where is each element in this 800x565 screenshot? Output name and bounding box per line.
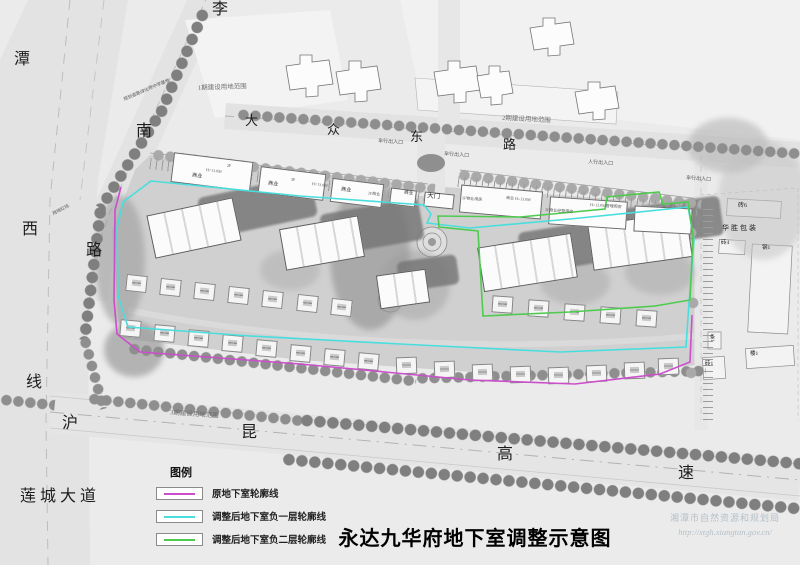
road-label-tan: 潭 — [14, 52, 30, 68]
industrial-label-lou1: 楼1 — [750, 352, 758, 358]
shop2-label: 商业 — [268, 181, 279, 187]
expressway-label-kun: 昆 — [241, 425, 257, 441]
shop3-label: 商业 — [341, 187, 352, 193]
road-label-nan: 南 — [136, 124, 152, 140]
legend-label-level-minus1: 调整后地下室负一层轮廓线 — [212, 509, 326, 523]
legend-label-level-minus2: 调整后地下室负二层轮廓线 — [212, 532, 326, 546]
legend-label-original: 原地下室轮廓线 — [212, 486, 279, 500]
legend-heading: 图例 — [170, 464, 326, 480]
shop1-floor: 2F — [227, 164, 231, 168]
industrial-label-zhuan4: 砖4 — [721, 241, 729, 247]
legend-swatch-level-minus2 — [156, 533, 203, 546]
road-label-xian: 线 — [26, 375, 42, 391]
road-label-da: 大 — [245, 114, 258, 127]
road-label-xi: 西 — [22, 222, 38, 238]
road-label-lu2: 路 — [503, 138, 516, 151]
expressway-label-gao: 高 — [497, 447, 513, 463]
shop5-label: 商业 — [404, 191, 413, 196]
legend-item-original: 原地下室轮廓线 — [156, 486, 326, 500]
road-label-li: 李 — [212, 2, 228, 18]
industrial-label-huasheng: 华胜包装 — [722, 225, 758, 232]
expressway-label-su: 速 — [678, 466, 694, 482]
expressway-label-hu: 沪 — [62, 416, 78, 432]
legend-item-level-minus1: 调整后地下室负一层轮廓线 — [156, 509, 326, 523]
outline-original — [114, 187, 692, 384]
drawing-title: 永达九华府地下室调整示意图 — [332, 522, 618, 551]
watermark-agency: 湘潭市自然资源和规划局 — [652, 511, 798, 524]
shop1-label: 商业 — [192, 173, 203, 179]
industrial-label-zhuan6: 砖6 — [738, 203, 747, 209]
legend-item-level-minus2: 调整后地下室负二层轮廓线 — [156, 532, 326, 546]
industrial-label-tiao1: 条1 — [709, 334, 714, 342]
industrial-label-zhuan1: 砖1 — [705, 362, 713, 368]
legend-swatch-level-minus1 — [156, 510, 203, 523]
shop2-floor: 3F — [291, 178, 295, 182]
gate-label: 大门 — [427, 193, 441, 201]
watermark: 湘潭市自然资源和规划局 http://xtgh.xiangtan.gov.cn/ — [652, 511, 798, 537]
avenue-label: 莲城大道 — [20, 489, 100, 505]
road-label-dong: 东 — [410, 130, 423, 143]
industrial-label-gang1: 钢1 — [762, 246, 770, 252]
watermark-url: http://xtgh.xiangtan.gov.cn/ — [652, 527, 798, 537]
legend: 图例 原地下室轮廓线 调整后地下室负一层轮廓线 调整后地下室负二层轮廓线 — [156, 464, 326, 555]
legend-swatch-original — [156, 487, 203, 500]
road-label-zhong: 众 — [327, 123, 340, 136]
road-label-lu: 路 — [86, 243, 102, 259]
site-plan: 潭 西 线 李 南 路 大 众 东 路 沪 昆 高 速 莲城大道 1期建设用地范… — [0, 0, 800, 565]
